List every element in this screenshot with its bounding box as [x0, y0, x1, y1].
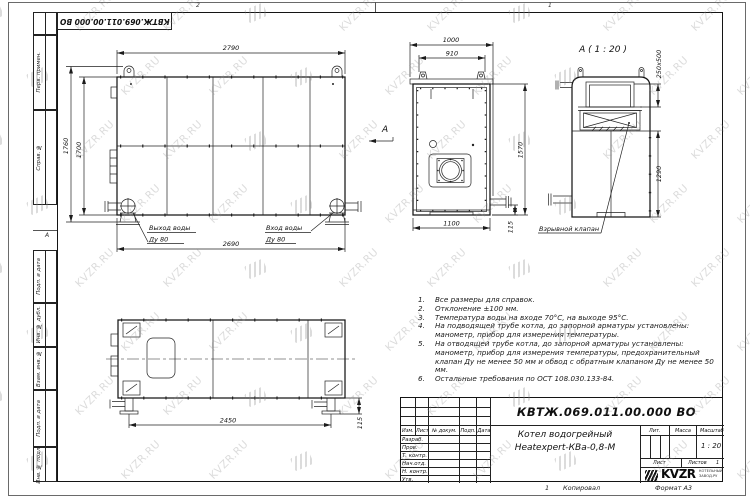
scale-label: Масштаб — [700, 428, 724, 434]
top-stamp: КВТЖ.069.011.00.000 ВО — [57, 12, 172, 30]
product-name: Котел водогрейный Heatexpert-КВа-0,8-М — [490, 425, 640, 459]
kvzr-logo-sub2: ЗАВОД.РУ — [699, 474, 717, 478]
mass-label: Масса — [675, 428, 691, 434]
note-item: 4.На подводящей трубе котла, до запорной… — [418, 322, 720, 340]
row-tkontr: Т. контр. — [402, 453, 427, 459]
margin-divider-bottom — [45, 250, 46, 482]
zone-tick-left — [33, 230, 57, 231]
doc-number: КВТЖ.069.011.00.000 ВО — [490, 398, 723, 425]
kvzr-logo-sub1: КОТЕЛЬНЫЙ — [699, 469, 723, 473]
technical-notes: 1.Все размеры для справок. 2.Отклонение … — [418, 296, 720, 384]
row-nkontr: Н. контр. — [402, 469, 428, 475]
row-razrab: Разраб. — [402, 437, 423, 443]
margin-divider-top — [45, 12, 46, 205]
footer-format-label: Формат А3 — [655, 484, 692, 492]
lit-label: Лит. — [649, 428, 661, 434]
row-prov: Пров. — [402, 445, 418, 451]
note-item: 6.Остальные требования по ОСТ 108.030.13… — [418, 375, 720, 384]
kvzr-logo-icon — [645, 470, 658, 481]
zone-letter-left: А — [45, 232, 49, 239]
title-block: КВТЖ.069.011.00.000 ВО Изм. Лист № докум… — [400, 397, 723, 482]
zone-number-left: 2 — [196, 2, 200, 9]
drawing-sheet: 2790 1760 1700 2690 Выход воды Ду 80 Вхо… — [0, 0, 750, 500]
row-utv: Утв. — [402, 477, 413, 483]
sheets-value: 1 — [716, 460, 719, 466]
col-podp: Подп. — [461, 428, 476, 434]
zone-number-right: 1 — [548, 2, 552, 9]
col-data: Дата — [478, 428, 491, 434]
kvzr-logo-text: KVZR — [661, 467, 696, 481]
col-dokum: № докум. — [432, 428, 457, 434]
zone-divider-tick — [375, 2, 376, 12]
sheet-label: Лист — [653, 460, 666, 466]
sheets-label: Листов — [688, 460, 707, 466]
footer-copy-label: Копировал — [563, 484, 600, 492]
col-list: Лист — [416, 428, 429, 434]
scale-value: 1 : 20 — [701, 442, 721, 450]
footer-number: 1 — [545, 484, 549, 492]
row-nachotd: Нач.отд. — [402, 461, 426, 467]
note-item: 5.На отводящей трубе котла, до запорной … — [418, 340, 720, 375]
top-stamp-number: КВТЖ.069.011.00.000 ВО — [60, 17, 170, 26]
col-izm: Изм. — [402, 428, 414, 434]
